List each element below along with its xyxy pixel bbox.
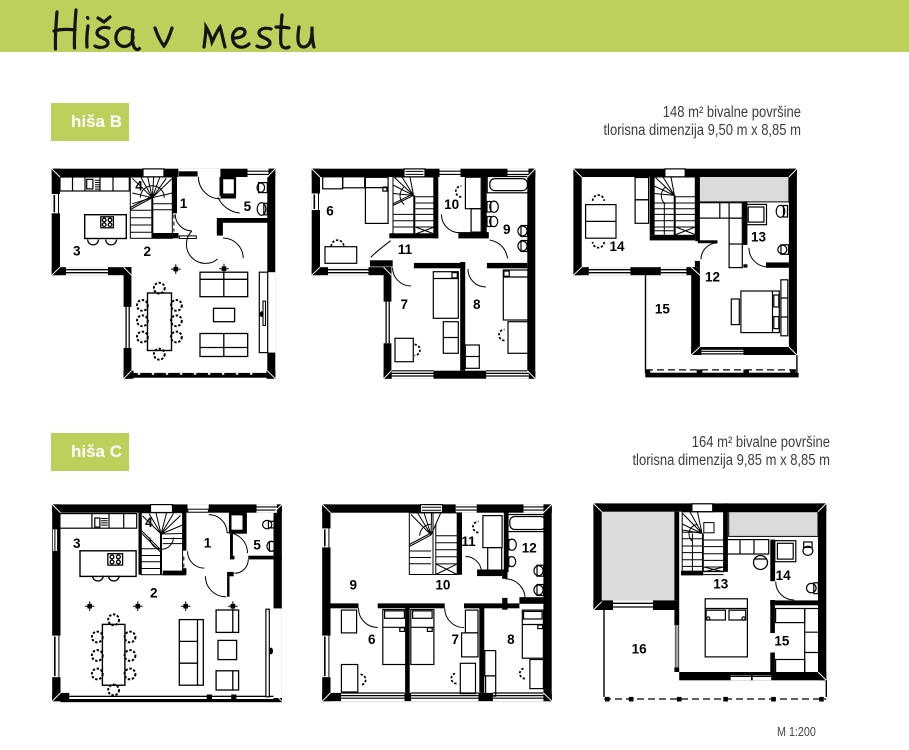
svg-text:9: 9 — [349, 577, 357, 592]
svg-text:8: 8 — [507, 632, 515, 647]
svg-text:6: 6 — [326, 204, 334, 219]
svg-text:9: 9 — [503, 222, 511, 237]
svg-text:3: 3 — [73, 244, 81, 259]
svg-text:12: 12 — [522, 541, 537, 556]
svg-text:7: 7 — [452, 632, 460, 647]
svg-text:7: 7 — [401, 297, 409, 312]
svg-text:13: 13 — [713, 576, 729, 591]
svg-text:3: 3 — [73, 536, 81, 551]
svg-text:14: 14 — [776, 568, 792, 583]
svg-text:5: 5 — [244, 199, 252, 214]
svg-text:2: 2 — [144, 244, 152, 259]
svg-text:4: 4 — [145, 515, 153, 530]
svg-text:12: 12 — [705, 270, 720, 285]
svg-text:11: 11 — [461, 534, 476, 549]
svg-text:1: 1 — [180, 196, 188, 211]
svg-text:8: 8 — [473, 297, 481, 312]
svg-text:15: 15 — [774, 633, 790, 648]
svg-text:16: 16 — [632, 641, 648, 656]
svg-text:10: 10 — [444, 197, 459, 212]
svg-text:6: 6 — [368, 632, 376, 647]
svg-text:5: 5 — [253, 538, 261, 553]
svg-text:2: 2 — [150, 585, 158, 600]
svg-text:14: 14 — [609, 239, 625, 254]
svg-text:1: 1 — [204, 536, 212, 551]
svg-text:11: 11 — [398, 242, 413, 257]
svg-text:4: 4 — [135, 179, 143, 194]
svg-text:15: 15 — [655, 302, 671, 317]
svg-text:10: 10 — [435, 577, 450, 592]
svg-text:13: 13 — [751, 230, 767, 245]
